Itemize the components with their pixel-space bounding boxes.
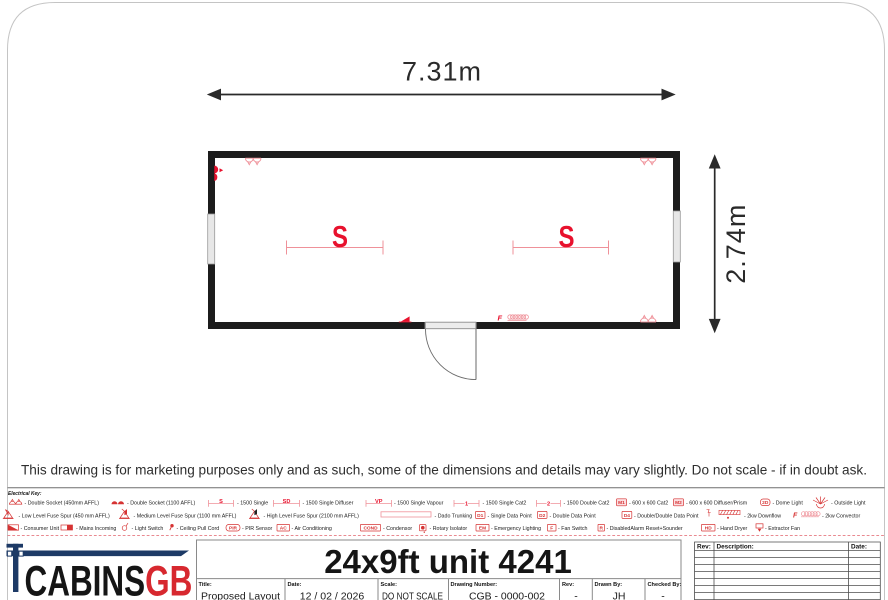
svg-text:CGB - 0000-002: CGB - 0000-002 — [469, 590, 545, 600]
svg-text:M1: M1 — [618, 500, 625, 506]
svg-text:COND: COND — [363, 526, 378, 532]
svg-text:- Double Socket (450mm AFFL): - Double Socket (450mm AFFL) — [25, 501, 100, 507]
svg-text:- Fan Switch: - Fan Switch — [558, 526, 587, 532]
svg-text:Description:: Description: — [717, 544, 754, 551]
svg-text:VP: VP — [375, 499, 383, 505]
svg-text:S: S — [332, 219, 348, 254]
svg-text:- Dome Light: - Dome Light — [773, 501, 804, 507]
svg-text:1: 1 — [465, 501, 468, 507]
svg-text:F: F — [793, 513, 798, 520]
svg-text:Drawing Number:: Drawing Number: — [451, 582, 498, 588]
svg-text:Proposed Layout: Proposed Layout — [201, 590, 280, 600]
svg-text:- Condensor: - Condensor — [383, 526, 412, 532]
svg-text:- 2kw Downflow: - 2kw Downflow — [744, 514, 781, 520]
svg-text:AC: AC — [280, 526, 287, 532]
svg-text:- Low Level Fuse Spur (450 mm: - Low Level Fuse Spur (450 mm AFFL) — [19, 514, 110, 520]
svg-text:S: S — [559, 219, 575, 254]
svg-text:- Rotary Isolator: - Rotary Isolator — [430, 526, 468, 532]
svg-text:7.31m: 7.31m — [402, 57, 482, 87]
svg-text:HD: HD — [705, 526, 712, 532]
svg-text:EM: EM — [479, 526, 486, 532]
svg-text:F: F — [498, 314, 503, 323]
svg-text:CABINSGB: CABINSGB — [25, 557, 193, 600]
svg-text:- Double Data Point: - Double Data Point — [550, 514, 597, 520]
svg-text:Rev:: Rev: — [697, 544, 711, 551]
svg-text:- Hand Dryer: - Hand Dryer — [717, 526, 748, 532]
svg-text:D2: D2 — [539, 513, 545, 519]
svg-text:Checked By:: Checked By: — [648, 582, 682, 588]
svg-text:- Double Socket (1100 AFFL): - Double Socket (1100 AFFL) — [127, 501, 195, 507]
svg-text:F: F — [550, 526, 553, 532]
svg-text:DO NOT SCALE: DO NOT SCALE — [382, 591, 443, 600]
svg-text:Title:: Title: — [199, 582, 212, 588]
svg-text:JH: JH — [613, 590, 626, 600]
svg-text:Date:: Date: — [288, 582, 302, 588]
svg-text:- Emergency Lighting: - Emergency Lighting — [491, 526, 541, 532]
svg-text:- 1500 Single Cat2: - 1500 Single Cat2 — [483, 501, 527, 507]
svg-text:M2: M2 — [675, 500, 682, 506]
svg-text:- Dado Trunking: - Dado Trunking — [435, 514, 473, 520]
svg-text:- PIR Sensor: - PIR Sensor — [242, 526, 273, 532]
svg-text:R: R — [600, 526, 604, 532]
svg-text:- Outside Light: - Outside Light — [831, 501, 866, 507]
svg-text:24x9ft unit 4241: 24x9ft unit 4241 — [324, 543, 572, 580]
svg-text:2D: 2D — [762, 500, 769, 506]
svg-text:- 600 x 600 Diffuser/Prism: - 600 x 600 Diffuser/Prism — [686, 501, 748, 507]
svg-text:- Double/Double Data Point: - Double/Double Data Point — [634, 514, 699, 520]
svg-text:Date:: Date: — [851, 544, 867, 551]
svg-text:-: - — [574, 590, 578, 600]
svg-text:SD: SD — [283, 499, 291, 505]
svg-text:- Light Switch: - Light Switch — [132, 526, 164, 532]
svg-text:- Ceiling Pull Cord: - Ceiling Pull Cord — [177, 526, 220, 532]
svg-text:- Mains Incoming: - Mains Incoming — [76, 526, 116, 532]
svg-text:- Extractor Fan: - Extractor Fan — [765, 526, 800, 532]
svg-text:- DisabledAlarm Reset+Sounder: - DisabledAlarm Reset+Sounder — [607, 526, 683, 532]
svg-text:2.74m: 2.74m — [721, 204, 751, 284]
svg-text:- Medium Level Fuse Spur (1100: - Medium Level Fuse Spur (1100 mm AFFL) — [134, 514, 237, 520]
svg-text:S: S — [219, 499, 223, 505]
svg-text:12 / 02 / 2026: 12 / 02 / 2026 — [300, 590, 365, 600]
svg-text:Drawn By:: Drawn By: — [595, 582, 623, 588]
svg-text:- 2kw Convector: - 2kw Convector — [822, 514, 861, 520]
svg-text:-: - — [661, 590, 665, 600]
svg-text:- Single Data Point: - Single Data Point — [488, 514, 533, 520]
svg-text:D1: D1 — [477, 513, 483, 519]
svg-text:Scale:: Scale: — [381, 582, 398, 588]
svg-text:Rev:: Rev: — [562, 582, 574, 588]
svg-text:This drawing is for marketing: This drawing is for marketing purposes o… — [21, 463, 867, 478]
svg-text:Electrical Key:: Electrical Key: — [8, 491, 42, 497]
svg-text:- High Level Fuse Spur (2100 m: - High Level Fuse Spur (2100 mm AFFL) — [264, 514, 360, 520]
svg-text:2: 2 — [547, 501, 550, 507]
svg-text:- Air Conditioning: - Air Conditioning — [292, 526, 332, 532]
svg-text:- 1500 Single Diffuser: - 1500 Single Diffuser — [303, 501, 354, 507]
svg-text:- 1500 Double Cat2: - 1500 Double Cat2 — [564, 501, 610, 507]
svg-text:- Consumer Unit: - Consumer Unit — [21, 526, 60, 532]
svg-text:- 1500 Single: - 1500 Single — [237, 501, 268, 507]
svg-text:D4: D4 — [624, 513, 630, 519]
svg-text:- 600 x 600 Cat2: - 600 x 600 Cat2 — [629, 501, 668, 507]
svg-text:PIR: PIR — [229, 526, 238, 532]
svg-text:- 1500 Single Vapour: - 1500 Single Vapour — [394, 501, 444, 507]
